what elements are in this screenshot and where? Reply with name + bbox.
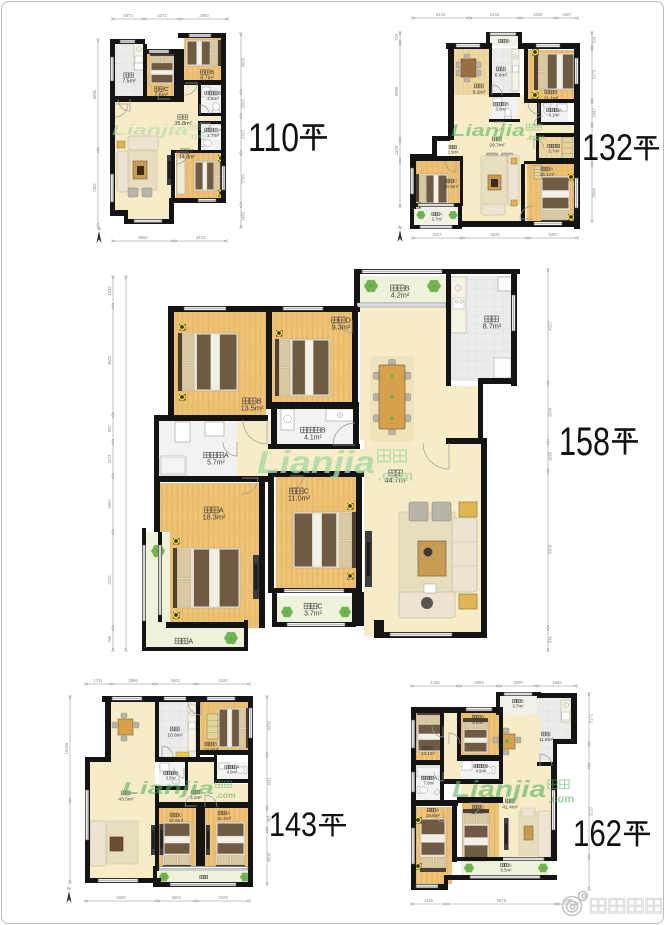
svg-text:4.2m²: 4.2m² — [391, 291, 410, 300]
svg-text:3.7m²: 3.7m² — [304, 610, 322, 617]
svg-text:132: 132 — [582, 127, 633, 168]
svg-text:6895: 6895 — [92, 89, 97, 99]
svg-text:4.9m²: 4.9m² — [476, 769, 487, 774]
svg-text:.com: .com — [526, 133, 544, 142]
svg-text:N: N — [97, 226, 100, 231]
svg-text:Lianjia: Lianjia — [257, 445, 375, 480]
svg-text:8882: 8882 — [138, 235, 148, 240]
svg-text:5171: 5171 — [589, 713, 594, 723]
svg-text:997: 997 — [107, 424, 112, 432]
svg-text:Lianjia: Lianjia — [112, 123, 188, 139]
svg-text:10.6m²: 10.6m² — [444, 184, 459, 189]
svg-text:10.6m²: 10.6m² — [169, 818, 184, 823]
svg-text:10.6m²: 10.6m² — [167, 732, 183, 738]
svg-text:1997: 1997 — [592, 108, 597, 118]
svg-text:2342: 2342 — [490, 12, 500, 17]
svg-text:3407: 3407 — [562, 12, 572, 17]
svg-text:.com: .com — [216, 790, 236, 800]
svg-text:14.9m²: 14.9m² — [179, 155, 196, 161]
svg-text:4327: 4327 — [548, 321, 553, 331]
svg-text:729: 729 — [394, 33, 399, 41]
svg-text:5904: 5904 — [592, 188, 597, 198]
svg-text:8.7m²: 8.7m² — [200, 76, 214, 82]
svg-text:3423: 3423 — [218, 678, 228, 683]
svg-text:9.3m²: 9.3m² — [332, 323, 351, 332]
svg-text:5306: 5306 — [548, 544, 553, 554]
svg-text:3.5m²: 3.5m² — [207, 96, 219, 101]
svg-text:1074: 1074 — [107, 454, 112, 464]
svg-text:3107: 3107 — [432, 232, 442, 237]
svg-text:1973: 1973 — [123, 13, 133, 18]
svg-text:1.5m²: 1.5m² — [448, 150, 459, 155]
svg-text:3826: 3826 — [490, 232, 500, 237]
svg-text:1332: 1332 — [107, 286, 112, 296]
svg-text:2966: 2966 — [128, 678, 138, 683]
svg-text:6.6m²: 6.6m² — [495, 72, 508, 78]
svg-text:7353: 7353 — [92, 183, 97, 193]
svg-text:3602: 3602 — [107, 355, 112, 365]
svg-text:41.4m²: 41.4m² — [502, 804, 518, 810]
svg-text:4320: 4320 — [116, 895, 126, 900]
svg-text:1435: 1435 — [430, 680, 440, 685]
svg-text:2036: 2036 — [533, 12, 543, 17]
svg-text:1425: 1425 — [424, 898, 434, 903]
svg-text:614: 614 — [592, 36, 597, 44]
svg-text:4.0m²: 4.0m² — [227, 770, 238, 775]
svg-text:N: N — [67, 886, 70, 891]
svg-text:2980: 2980 — [199, 13, 209, 18]
svg-text:143: 143 — [269, 806, 317, 844]
svg-text:2372: 2372 — [157, 13, 167, 18]
svg-text:6000: 6000 — [241, 57, 246, 67]
svg-text:Lianjia: Lianjia — [122, 778, 214, 798]
svg-text:13.5m²: 13.5m² — [241, 404, 264, 413]
svg-text:8.5m²: 8.5m² — [501, 868, 512, 873]
svg-text:8.5m²: 8.5m² — [472, 720, 484, 725]
svg-text:16.3m²: 16.3m² — [217, 816, 232, 821]
svg-text:11.1m²: 11.1m² — [544, 95, 559, 101]
svg-text:11.0m²: 11.0m² — [288, 494, 311, 503]
svg-text:2157: 2157 — [241, 129, 246, 139]
svg-text:3423: 3423 — [218, 895, 228, 900]
svg-text:19.6m²: 19.6m² — [426, 813, 440, 818]
svg-text:1329: 1329 — [394, 145, 399, 155]
svg-text:3223: 3223 — [107, 575, 112, 585]
svg-text:1095: 1095 — [548, 451, 553, 461]
svg-text:.com: .com — [378, 467, 413, 484]
svg-text:788: 788 — [107, 635, 112, 643]
svg-text:2894: 2894 — [474, 680, 484, 685]
svg-text:5173: 5173 — [592, 69, 597, 79]
svg-text:1604: 1604 — [548, 407, 553, 417]
svg-text:3433: 3433 — [196, 235, 206, 240]
svg-text:5679: 5679 — [497, 898, 507, 903]
svg-text:158: 158 — [559, 420, 610, 464]
svg-text:2601: 2601 — [171, 678, 181, 683]
svg-text:5.7m²: 5.7m² — [207, 459, 225, 466]
svg-text:2800: 2800 — [513, 680, 523, 685]
svg-text:N: N — [398, 225, 401, 230]
svg-text:3.9m²: 3.9m² — [496, 107, 507, 112]
svg-text:7.6m²: 7.6m² — [154, 93, 168, 99]
svg-text:1857: 1857 — [107, 499, 112, 509]
svg-text:5958: 5958 — [394, 86, 399, 96]
svg-text:11.2m²: 11.2m² — [471, 810, 485, 815]
svg-text:Lianjia: Lianjia — [452, 776, 546, 802]
svg-text:162: 162 — [573, 813, 622, 854]
svg-text:3.7m²: 3.7m² — [513, 704, 524, 709]
svg-text:2801: 2801 — [172, 895, 182, 900]
svg-text:541: 541 — [548, 635, 553, 643]
svg-text:4.1m²: 4.1m² — [549, 113, 560, 118]
svg-text:.com: .com — [189, 132, 207, 141]
svg-text:B: B — [507, 39, 510, 44]
svg-text:1731: 1731 — [93, 678, 103, 683]
svg-text:3407: 3407 — [548, 232, 558, 237]
svg-text:.com: .com — [548, 793, 574, 805]
svg-text:7.0m²: 7.0m² — [424, 781, 435, 786]
svg-text:2443: 2443 — [436, 12, 446, 17]
svg-text:8.7m²: 8.7m² — [483, 322, 502, 331]
svg-text:18.3m²: 18.3m² — [203, 513, 226, 522]
svg-text:3.7m²: 3.7m² — [207, 133, 219, 138]
svg-text:2063: 2063 — [241, 99, 246, 109]
svg-text:1811: 1811 — [267, 776, 272, 786]
svg-text:4000: 4000 — [267, 852, 272, 862]
svg-text:15.1m²: 15.1m² — [540, 172, 555, 177]
svg-text:15065: 15065 — [64, 742, 69, 754]
svg-text:Lianjia: Lianjia — [451, 122, 525, 140]
svg-text:5432: 5432 — [267, 720, 272, 730]
svg-text:29.7m²: 29.7m² — [489, 142, 505, 148]
svg-text:13.1m²: 13.1m² — [421, 751, 435, 756]
svg-text:14.6m²: 14.6m² — [204, 747, 219, 752]
svg-text:110: 110 — [248, 116, 299, 160]
svg-text:1463: 1463 — [241, 211, 246, 221]
svg-text:4.1m²: 4.1m² — [304, 434, 322, 441]
svg-text:1983: 1983 — [552, 680, 562, 685]
svg-text:A: A — [188, 638, 193, 646]
svg-text:11.8m²: 11.8m² — [539, 737, 554, 742]
svg-text:7.5m²: 7.5m² — [122, 79, 136, 85]
svg-text:5.7m²: 5.7m² — [549, 149, 560, 154]
svg-text:8.2m²: 8.2m² — [473, 89, 486, 95]
svg-text:2.7m²: 2.7m² — [432, 217, 443, 222]
svg-text:3709: 3709 — [241, 174, 246, 184]
